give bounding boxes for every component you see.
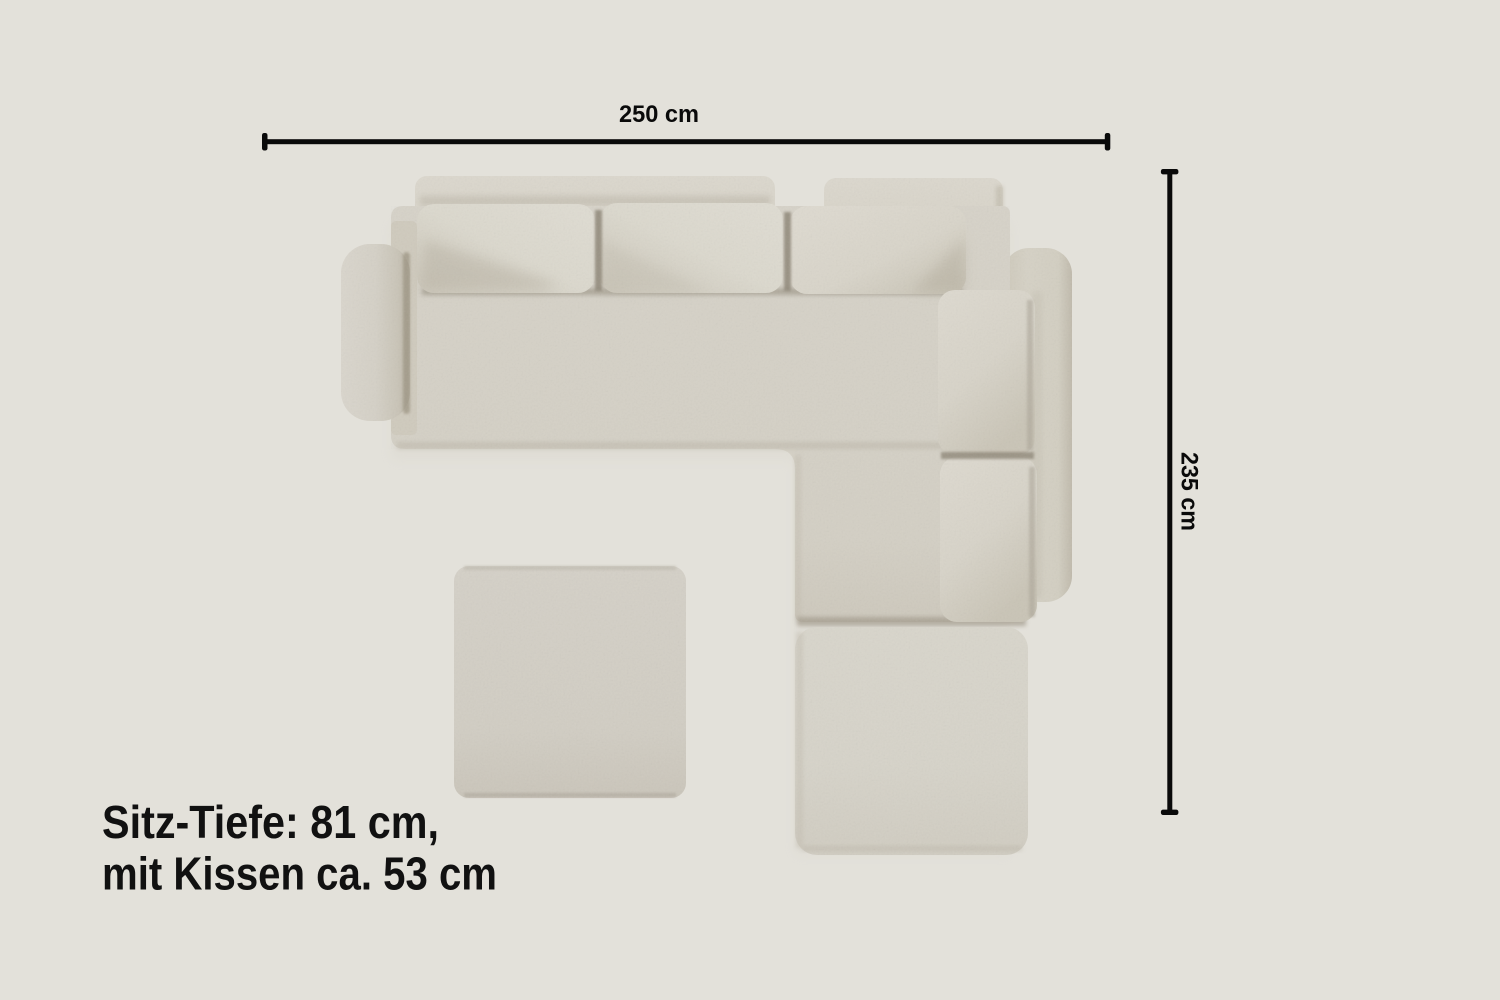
svg-text:Sitz-Tiefe: 81 cm,: Sitz-Tiefe: 81 cm,	[102, 796, 439, 848]
svg-text:235 cm: 235 cm	[1176, 452, 1203, 531]
svg-text:250 cm: 250 cm	[619, 101, 699, 128]
svg-text:mit Kissen ca. 53 cm: mit Kissen ca. 53 cm	[102, 848, 497, 900]
